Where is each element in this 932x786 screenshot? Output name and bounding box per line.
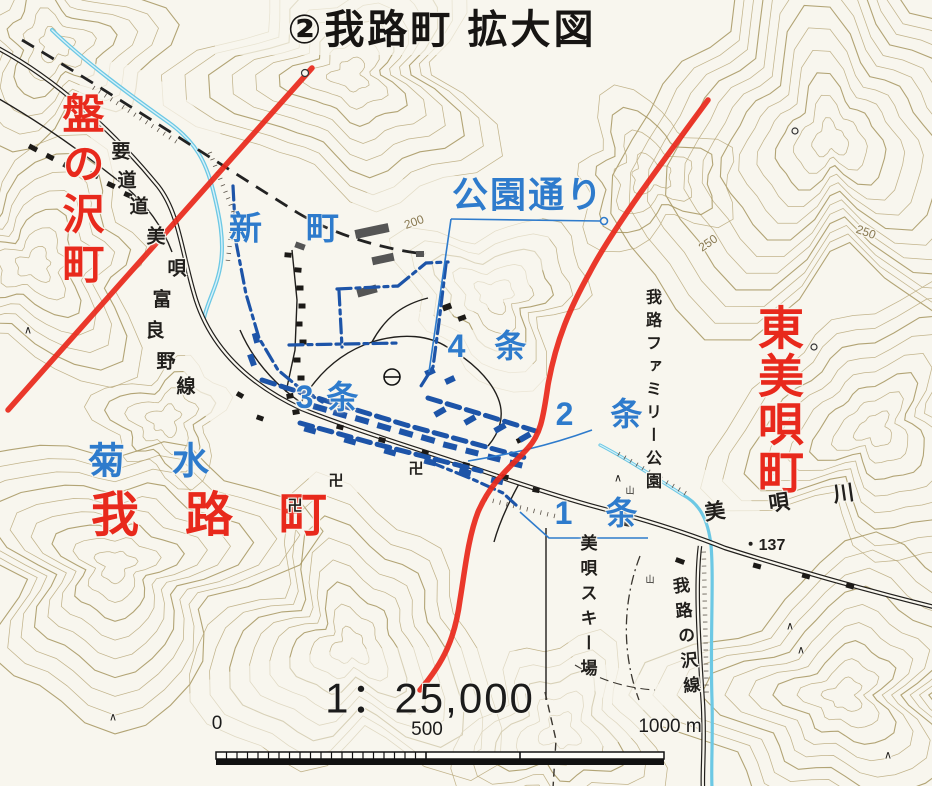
scale-bar <box>216 752 664 765</box>
map-canvas: ②我路町 拡大図 盤の沢町東美唄町我路町公園通り新町4 条3 条2 条1 条菊水… <box>0 0 932 786</box>
scale-tick-500: 500 <box>411 719 443 741</box>
map-title: ②我路町 拡大図 <box>288 0 597 55</box>
scale-tick-1000: 1000 m <box>638 716 701 738</box>
scale-tick-0: 0 <box>212 713 223 735</box>
scale-ratio-text: 1：25,000 <box>325 665 535 726</box>
